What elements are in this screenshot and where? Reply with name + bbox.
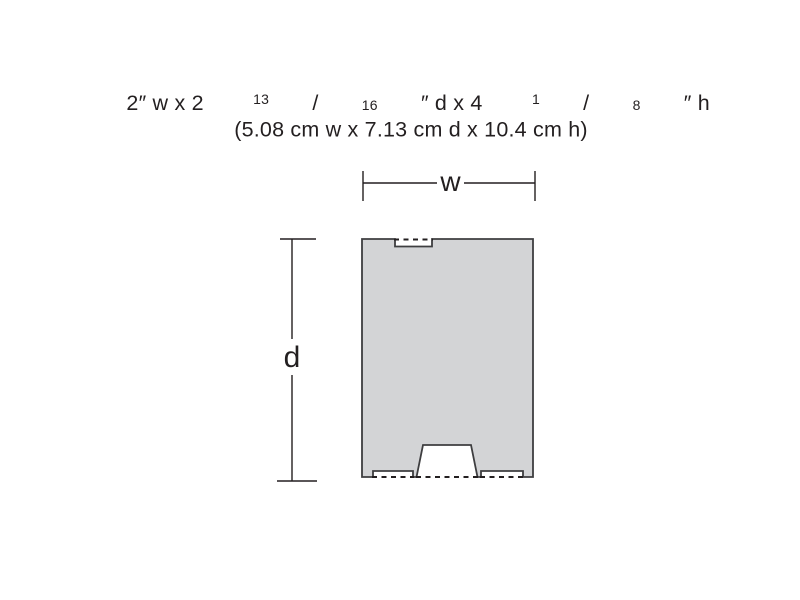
- footprint-diagram: 2″ w x 2 13 / 16 ″ d x 4 1 / 8 ″ h (5.08…: [0, 0, 800, 600]
- fraction1-denominator: 16: [362, 97, 378, 113]
- width-label: w: [439, 166, 461, 197]
- fraction2-numerator: 1: [532, 91, 540, 107]
- fraction1-slash: /: [312, 91, 318, 115]
- width-dimension: w: [363, 166, 535, 201]
- fraction1-numerator: 13: [253, 91, 269, 107]
- imperial-part2: ″ d x 4: [421, 91, 489, 115]
- fraction2-slash: /: [583, 91, 589, 115]
- imperial-part3: ″ h: [684, 91, 710, 115]
- imperial-part1: 2″ w x 2: [126, 91, 210, 115]
- dimensions-metric-text: (5.08 cm w x 7.13 cm d x 10.4 cm h): [234, 118, 588, 142]
- footprint-shape: [362, 239, 533, 477]
- footprint-diagram-page: 2″ w x 2 13 / 16 ″ d x 4 1 / 8 ″ h (5.08…: [0, 0, 800, 600]
- depth-dimension: d: [277, 239, 317, 481]
- fraction2-denominator: 8: [633, 97, 641, 113]
- depth-label: d: [284, 341, 301, 374]
- dimensions-imperial-text: 2″ w x 2 13 / 16 ″ d x 4 1 / 8 ″ h: [83, 85, 741, 115]
- footprint-outline: [362, 239, 533, 477]
